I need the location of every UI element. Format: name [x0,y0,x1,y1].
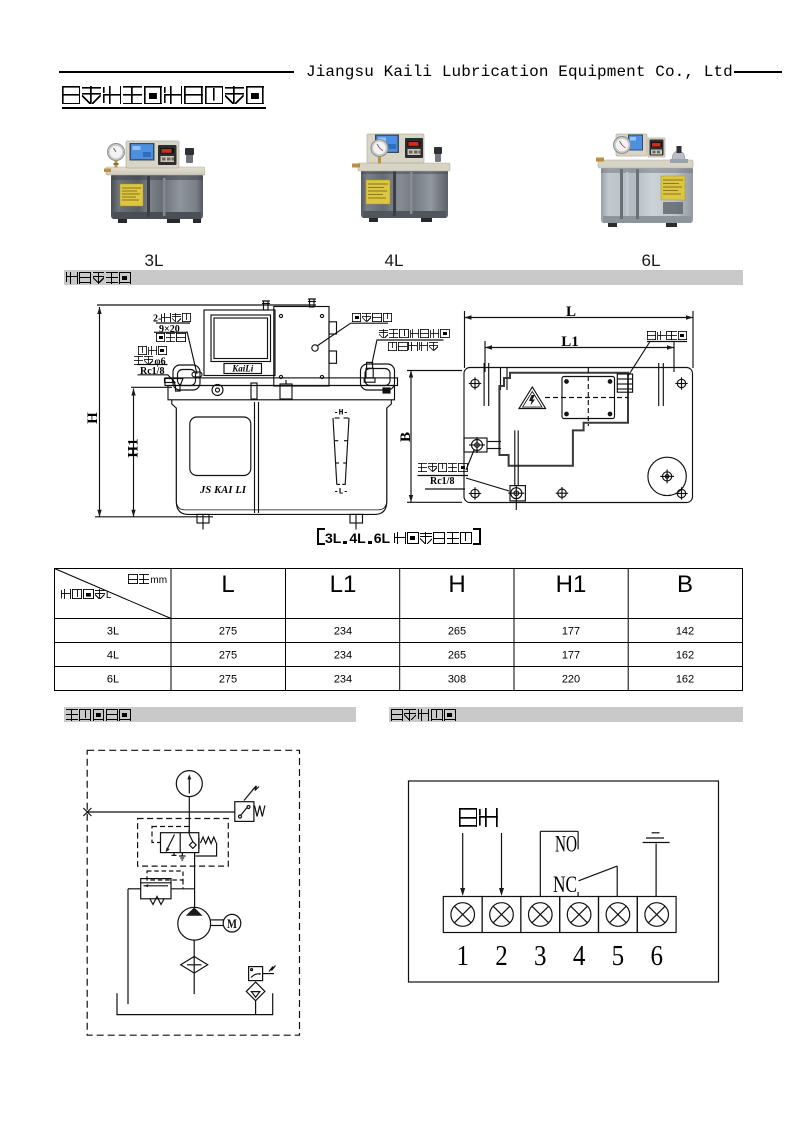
svg-text:6L: 6L [107,674,119,686]
svg-text:4L: 4L [107,650,119,662]
svg-text:265: 265 [448,626,466,638]
svg-text:177: 177 [562,650,580,662]
svg-text:H1: H1 [556,571,587,598]
svg-text:3L: 3L [107,626,119,638]
svg-text:308: 308 [448,674,466,686]
svg-text:234: 234 [334,674,352,686]
svg-text:B: B [677,571,693,598]
svg-text:220: 220 [562,674,580,686]
svg-text:234: 234 [334,626,352,638]
svg-text:142: 142 [676,626,694,638]
svg-text:H: H [448,571,465,598]
svg-text:275: 275 [219,626,237,638]
svg-text:234: 234 [334,650,352,662]
svg-text:275: 275 [219,650,237,662]
svg-text:275: 275 [219,674,237,686]
svg-text:265: 265 [448,650,466,662]
svg-text:L1: L1 [330,571,357,598]
svg-text:162: 162 [676,674,694,686]
svg-text:177: 177 [562,626,580,638]
svg-text:L: L [221,571,234,598]
svg-text:162: 162 [676,650,694,662]
